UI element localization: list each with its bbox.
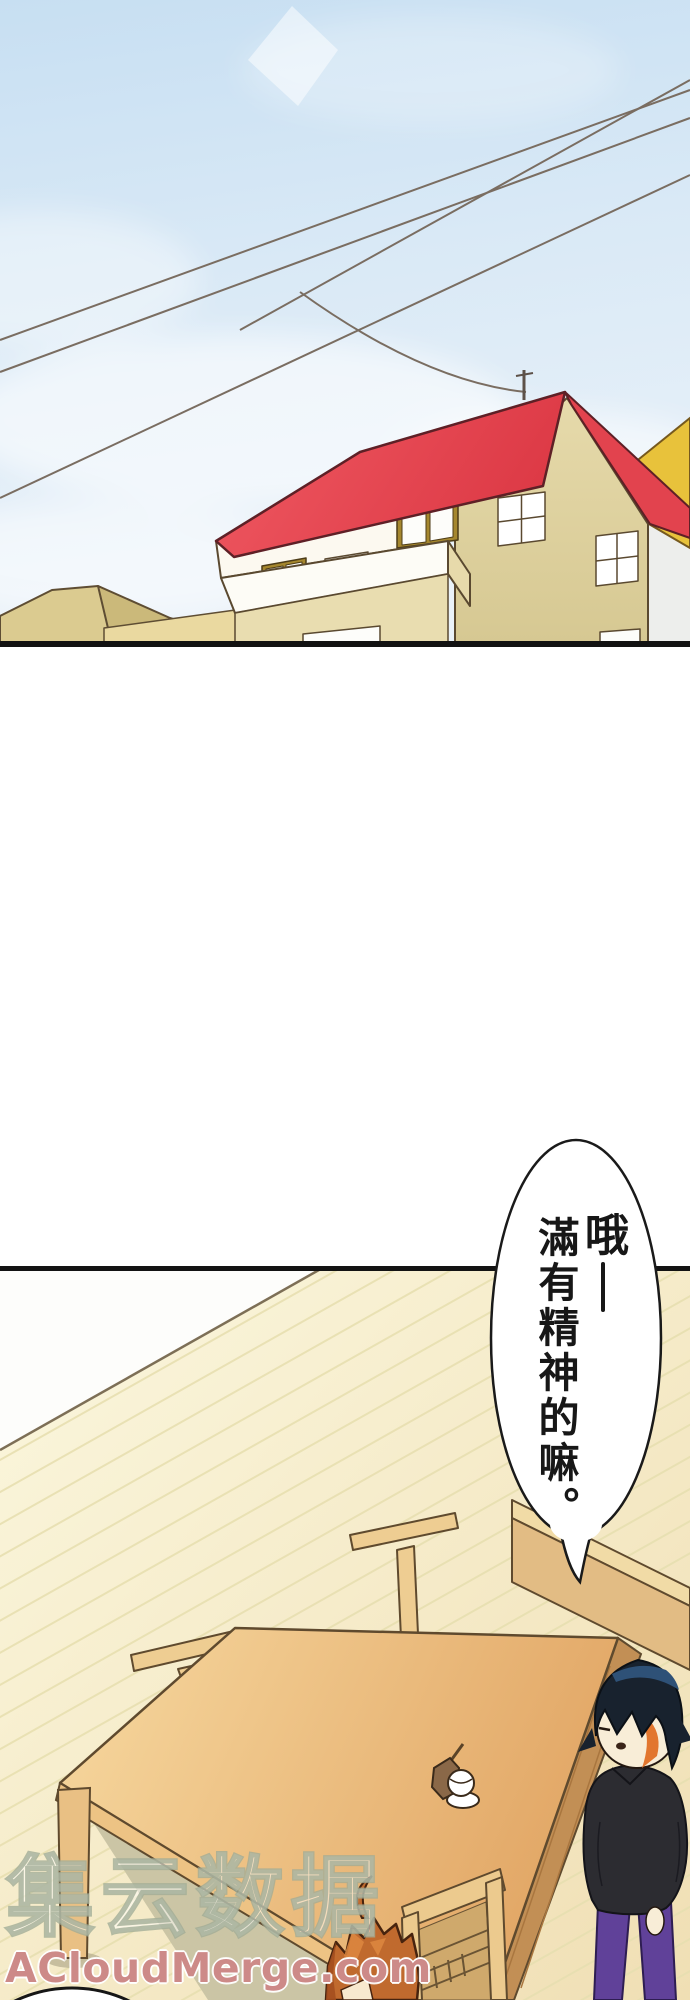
watermark-site-url: ACloudMerge.com: [5, 1944, 432, 1992]
panel-exterior: [0, 0, 690, 647]
bubble-text-left-column: 滿有精神的嘛。: [534, 1216, 575, 1546]
hand: [646, 1907, 664, 1935]
gable-window-2: [596, 531, 638, 586]
panel1-border: [0, 641, 690, 647]
gable-window-1: [498, 492, 545, 546]
watermark-cjk: 集云数据: [6, 1852, 386, 1944]
jacket: [584, 1766, 688, 1915]
prolonged-sound-mark: [601, 1262, 605, 1312]
manga-page: 哦 滿有精神的嘛。 集云数据 ACloudMerge.com: [0, 0, 690, 2000]
bubble-text-right-column: 哦: [580, 1212, 624, 1256]
mouth: [616, 1743, 626, 1750]
